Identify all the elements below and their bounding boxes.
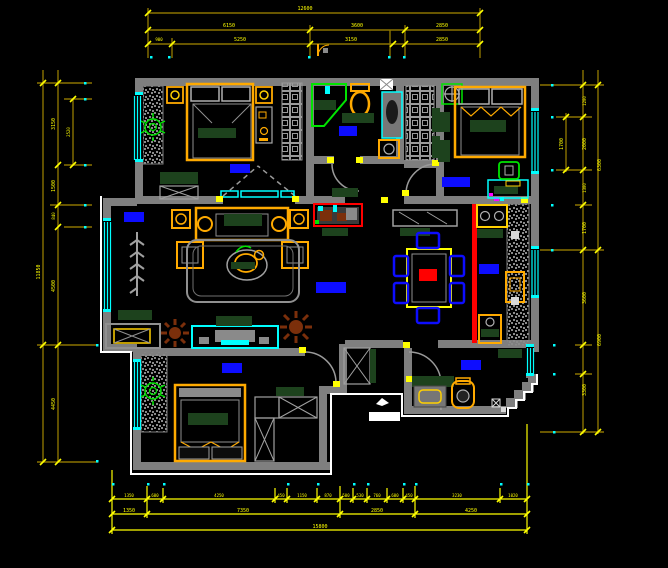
dim-text: 1500 [51, 180, 57, 192]
cad-drawing-stage: 1260061503600285090052503150285011850315… [0, 0, 668, 568]
dim-text: 900 [155, 37, 163, 42]
dim-text: 15800 [312, 524, 327, 530]
oven-dial [486, 318, 494, 326]
dim-text: 450 [277, 493, 285, 498]
dim-text: 1200 [582, 96, 587, 106]
axis-dot [168, 56, 171, 59]
door-hinge [216, 196, 223, 202]
axis-dot [551, 116, 554, 119]
room-label [339, 126, 357, 136]
dim-text: 500 [342, 493, 350, 498]
bench-cushion [160, 172, 198, 184]
chair [499, 162, 519, 179]
door-hinge [406, 376, 413, 382]
axis-dot [308, 56, 311, 59]
toilet-seat [457, 390, 469, 402]
dims-top: 12600615036002850900525031502850 [145, 6, 483, 59]
window-sill [135, 92, 143, 95]
window-sill [133, 359, 141, 362]
axis-dot [403, 56, 406, 59]
door-symbol-jamb [323, 48, 328, 53]
axis-dot [84, 82, 87, 85]
window-sill [526, 344, 534, 347]
desk-dot [489, 193, 493, 196]
dim-text: 3300 [582, 384, 588, 396]
burner [481, 212, 490, 221]
dim-text: 4250 [465, 508, 477, 514]
door-arc [406, 164, 436, 194]
dim-text: 870 [324, 493, 332, 498]
floor-plant [169, 327, 181, 339]
armchair-seat [182, 247, 198, 263]
bed-blanket [470, 120, 506, 132]
lamp [260, 91, 268, 99]
dim-text: 4500 [51, 280, 57, 292]
counter [498, 349, 522, 358]
dim-text: 3150 [51, 118, 57, 130]
dim-text: 1150 [297, 493, 307, 498]
dim-text: 840 [51, 212, 56, 220]
burner [495, 212, 504, 221]
entry-sign [369, 412, 400, 421]
sideboard [393, 210, 457, 226]
axis-dot [84, 226, 87, 229]
dim-text: 1350 [124, 493, 134, 498]
axis-dot [551, 84, 554, 87]
console-decor-brown [337, 213, 347, 221]
hall-furniture [314, 188, 362, 236]
hatch-pier [507, 204, 529, 346]
wall-segment [295, 196, 345, 204]
room-label [316, 282, 346, 293]
bed-pillow [222, 87, 250, 101]
window-sill [135, 159, 143, 162]
sofa-scroll [272, 217, 286, 231]
dim-text: 450 [405, 493, 413, 498]
corner-bench-x [114, 329, 150, 343]
counter [477, 229, 503, 238]
axis-dot [96, 344, 99, 347]
axis-dot [112, 483, 115, 486]
console-shelf [322, 228, 348, 236]
vanity-basin [386, 100, 398, 124]
bed-blanket [188, 413, 228, 425]
bed-blanket [198, 128, 236, 138]
window-sill [531, 108, 539, 111]
dim-text: 600 [151, 493, 159, 498]
door-arc [305, 352, 336, 383]
counter [412, 376, 454, 387]
dim-text: 6900 [597, 334, 603, 346]
console-decor-cyan [333, 205, 337, 212]
wardrobe-x [255, 418, 274, 461]
dim-text: 2850 [371, 508, 383, 514]
dim-text: 600 [391, 493, 399, 498]
wall-segment [345, 340, 403, 348]
corner-shelf [118, 310, 152, 320]
dim-text: 3600 [582, 292, 588, 304]
bed-drawer [179, 447, 209, 459]
chair-seat [505, 166, 513, 175]
bed-pillow [492, 89, 522, 104]
counter-block [511, 297, 519, 305]
dim-text: 530 [356, 493, 364, 498]
floor-plan-svg: 1260061503600285090052503150285011850315… [0, 0, 668, 568]
axis-dot [367, 483, 370, 486]
bed-zigzag [461, 107, 521, 116]
console-decor-gray [346, 208, 357, 220]
door-hinge [333, 381, 340, 387]
room-label [461, 360, 481, 370]
shower-head [325, 86, 330, 94]
axis-dot [403, 483, 406, 486]
side-table-lamp [176, 214, 186, 224]
closet-shelf [438, 140, 450, 162]
axis-dot [84, 98, 87, 101]
axis-dot [551, 249, 554, 252]
dining-chair [450, 283, 464, 303]
dims-right: 170012002000130017003600330063006900 [540, 70, 604, 435]
console-decor-brown [320, 210, 332, 221]
entry-furniture [344, 348, 400, 421]
stove [477, 205, 507, 227]
shoe-cabinet-side [370, 349, 376, 383]
console-decor-cyan [318, 206, 323, 211]
dim-text: 11850 [36, 264, 42, 279]
door-hinge [381, 197, 388, 203]
window-sill [103, 218, 111, 221]
media-shelf [216, 316, 252, 326]
dim-text: 6150 [223, 23, 235, 29]
tv-screen [221, 340, 249, 345]
axis-dot [147, 483, 150, 486]
bed-headboard [179, 388, 241, 397]
dining-chair [394, 256, 408, 276]
dim-text: 1350 [123, 508, 135, 514]
living-furniture [106, 208, 312, 348]
desk-top [494, 186, 518, 194]
door-hinge [292, 196, 299, 202]
tv-speaker [259, 337, 269, 344]
dim-text: 2850 [436, 23, 448, 29]
dining-chair [417, 308, 439, 323]
dim-text: 1700 [582, 222, 588, 234]
dining-runner [419, 269, 437, 281]
bed-drawer [212, 447, 242, 459]
bath-cabinet [342, 113, 374, 123]
dim-text: 1700 [559, 138, 565, 150]
axis-dot [553, 344, 556, 347]
axis-dot [150, 56, 153, 59]
dim-text: 6300 [597, 159, 603, 171]
shoe-cabinet-x [344, 348, 370, 384]
floor-dot [501, 407, 506, 412]
window-sill [531, 246, 539, 249]
side-table [172, 210, 190, 228]
door-hinge [299, 347, 306, 353]
walls [103, 78, 539, 470]
axis-dot [553, 373, 556, 376]
hall-mat [332, 188, 358, 197]
dim-text: 760 [373, 493, 381, 498]
coat-rack [130, 232, 144, 296]
dining-chair [450, 256, 464, 276]
toilet-bowl [351, 92, 369, 116]
axis-dot [553, 431, 556, 434]
wall-segment [319, 386, 327, 470]
door-hinge [402, 190, 409, 196]
axis-dot [317, 483, 320, 486]
axis-dot [551, 169, 554, 172]
dim-text: 2850 [436, 37, 448, 43]
door-hinge [432, 160, 439, 166]
dining-chair [394, 283, 408, 303]
axis-dot [84, 204, 87, 207]
door-arc [332, 164, 359, 191]
dresser-mirror [259, 112, 266, 118]
window-sill [103, 309, 111, 312]
axis-dot [527, 483, 530, 486]
dim-text: 1300 [582, 183, 587, 193]
dim-text: 3600 [351, 23, 363, 29]
dim-text: 3230 [452, 493, 462, 498]
counter-block [511, 231, 519, 239]
dim-text: 2520 [66, 127, 71, 137]
dims-left: 1185031501500840450044502520 [36, 70, 99, 465]
armchair-seat [287, 247, 303, 263]
console-decor-green [315, 220, 319, 224]
dining-furniture [393, 210, 464, 323]
door-hinge [327, 157, 334, 163]
side-table [290, 210, 308, 228]
wardrobe-x [279, 397, 317, 418]
room-label [222, 363, 242, 373]
north-arrow [376, 398, 389, 406]
wardrobe [255, 397, 279, 418]
sliding-door-track [241, 191, 278, 197]
dim-text: 12600 [297, 6, 312, 12]
floor-plant [289, 320, 303, 334]
wardrobe-shelf [276, 387, 304, 396]
floor-drain-x [492, 399, 500, 407]
window-sill [531, 171, 539, 174]
room-label [230, 164, 250, 173]
window-sill [526, 373, 534, 376]
window-sill [531, 295, 539, 298]
dresser-mark [259, 138, 268, 141]
door-hinge [403, 342, 410, 348]
wardrobe-grid [282, 83, 302, 160]
door-hinge [356, 157, 363, 163]
axis-dot [388, 56, 391, 59]
dim-text: 5250 [234, 37, 246, 43]
room-label [479, 264, 499, 274]
room-label [442, 177, 470, 187]
nightstand [256, 87, 272, 103]
closet-shelf [438, 112, 450, 132]
washer-drum [384, 144, 394, 154]
axis-dot [96, 460, 99, 463]
axis-dot [163, 483, 166, 486]
axis-dot [287, 483, 290, 486]
shower-shelf [314, 100, 336, 110]
oven-shelf [481, 329, 499, 337]
wardrobe-grid [406, 86, 434, 160]
sofa-cushion [224, 214, 262, 226]
desk-tray [506, 181, 520, 186]
sofa-scroll [198, 217, 212, 231]
axis-dot [353, 483, 356, 486]
room-label [124, 212, 144, 222]
dim-text: 4450 [51, 398, 57, 410]
axis-dot [84, 164, 87, 167]
bed-folds [193, 104, 251, 123]
lamp [171, 91, 179, 99]
side-table-lamp [294, 214, 304, 224]
wall-segment [143, 196, 223, 204]
window-backer [135, 94, 143, 162]
nightstand [167, 87, 183, 103]
bed-frame [187, 84, 253, 160]
dim-text: 4250 [214, 493, 224, 498]
window-sill [133, 427, 141, 430]
dresser-stool [261, 128, 268, 135]
dim-text: 2000 [582, 138, 588, 150]
axis-dot [551, 204, 554, 207]
dim-text: 1020 [508, 493, 518, 498]
wall-segment [133, 462, 331, 470]
wall-segment [404, 196, 539, 204]
dim-text: 3150 [345, 37, 357, 43]
coffee-tray [231, 262, 255, 269]
tv-speaker [199, 337, 209, 344]
axis-dot [500, 483, 503, 486]
sideboard-diag [399, 212, 447, 224]
axis-dot [415, 483, 418, 486]
ceiling-fan-cross [444, 86, 460, 102]
bed-pillow [191, 87, 219, 101]
bed-pillow [459, 89, 489, 104]
dim-text: 7350 [237, 508, 249, 514]
